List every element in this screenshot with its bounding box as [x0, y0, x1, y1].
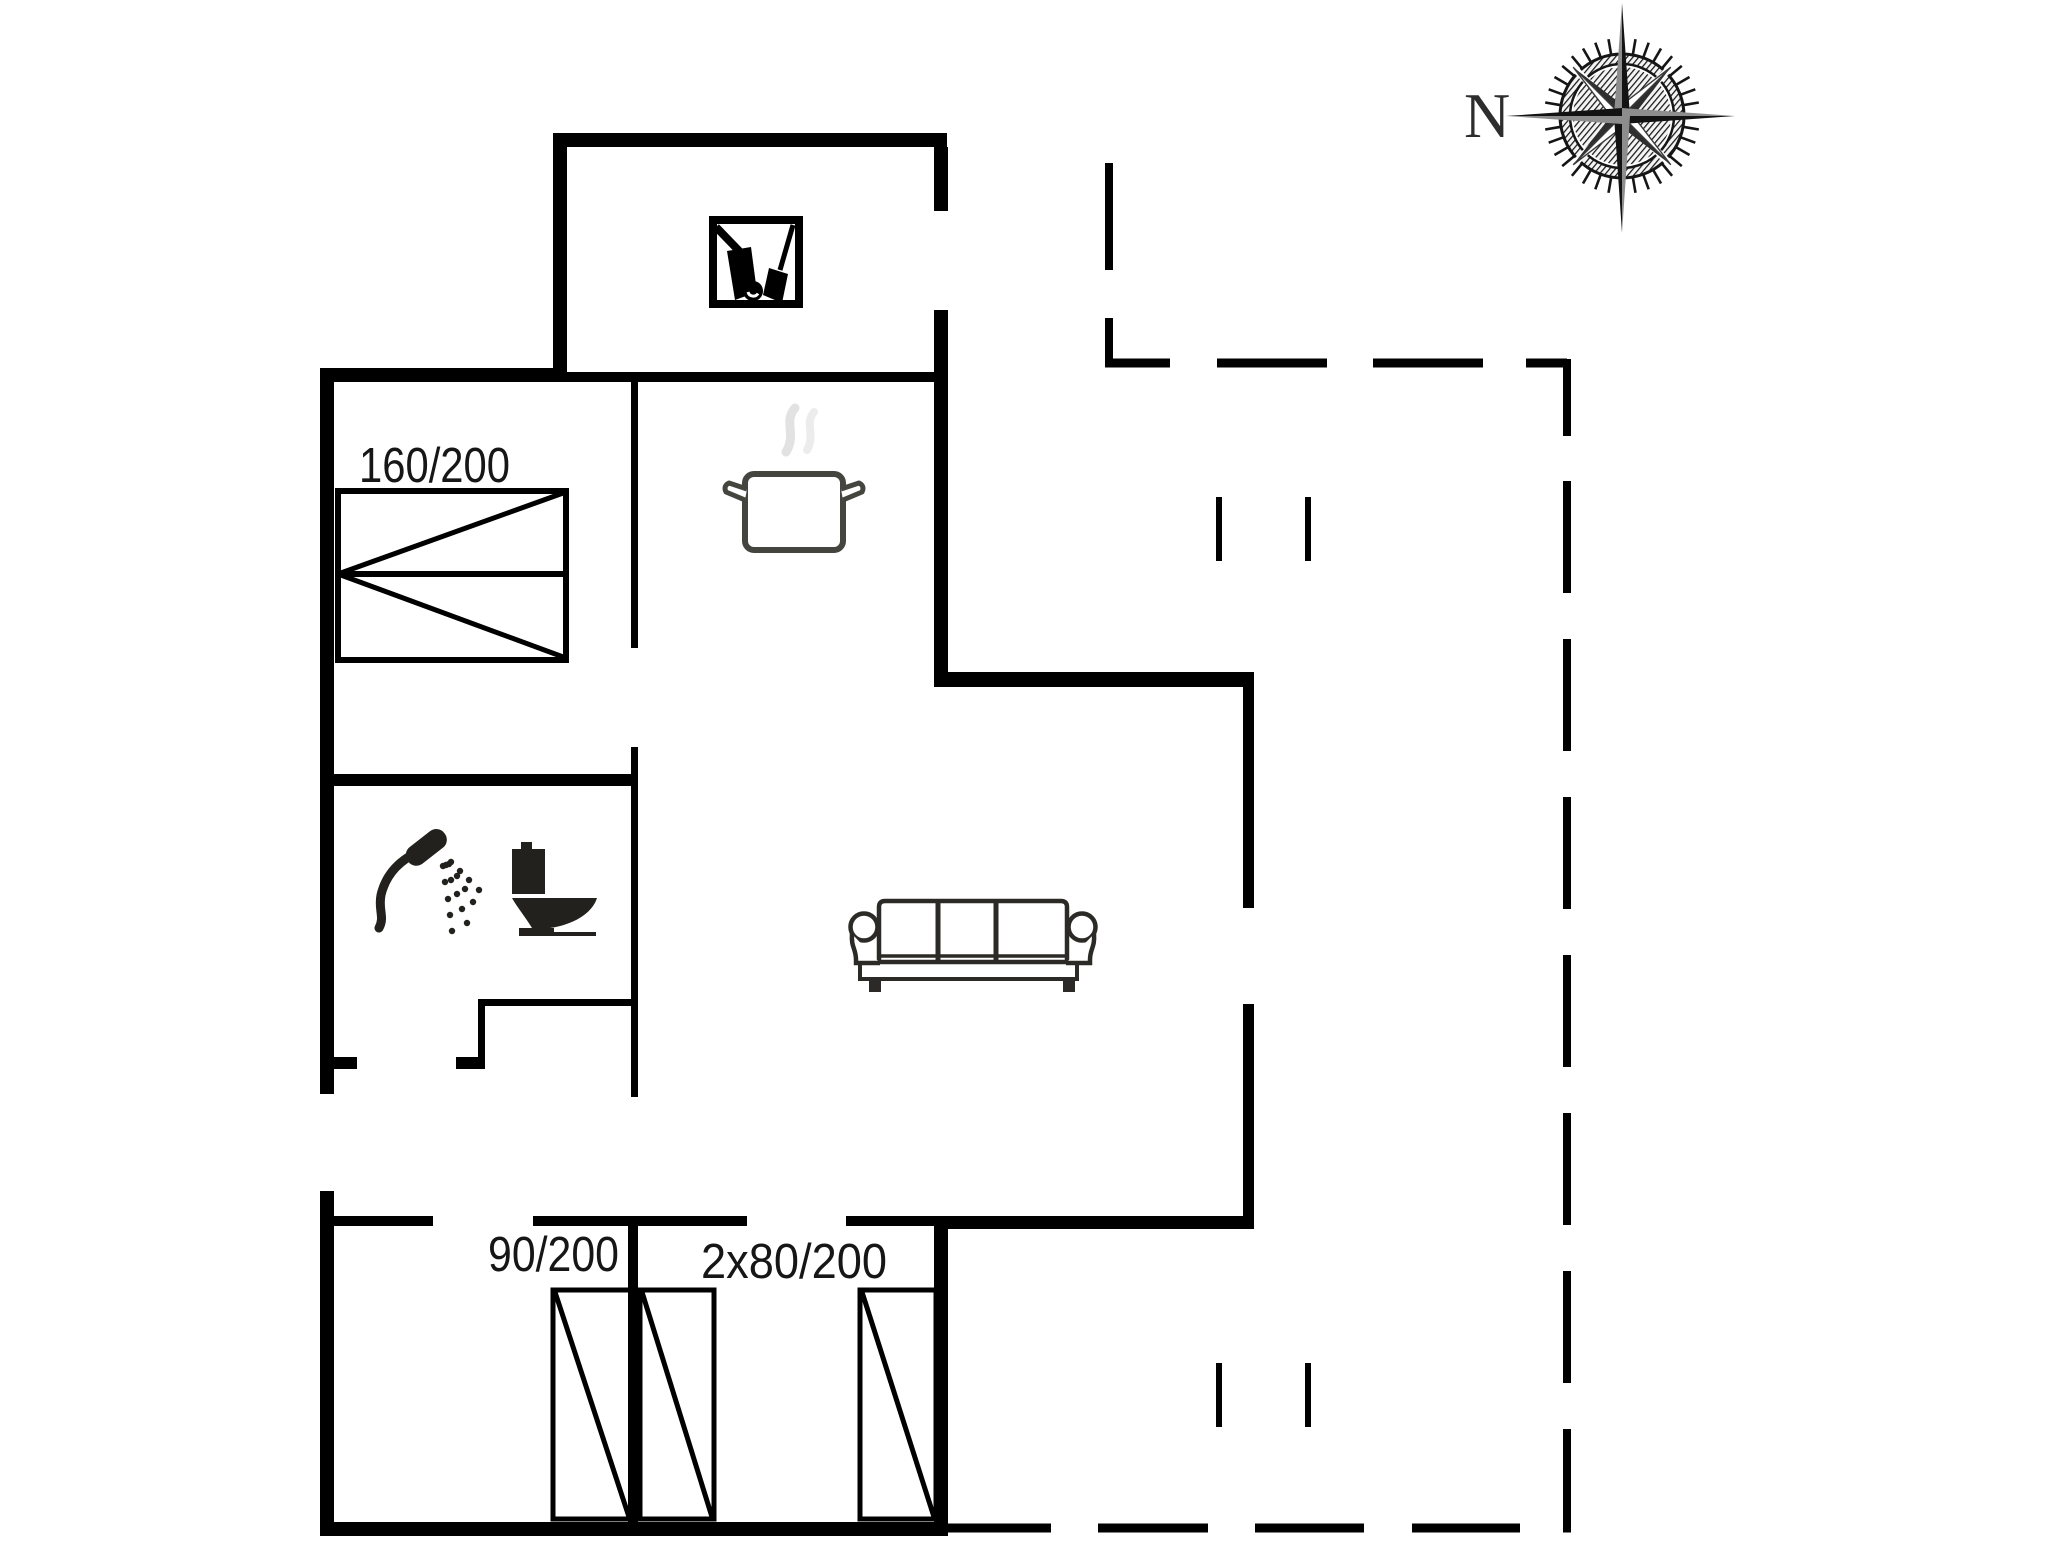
- svg-text:160/200: 160/200: [359, 439, 510, 493]
- svg-text:N: N: [1464, 80, 1510, 151]
- svg-text:90/200: 90/200: [488, 1228, 619, 1282]
- svg-text:2x80/200: 2x80/200: [701, 1235, 887, 1289]
